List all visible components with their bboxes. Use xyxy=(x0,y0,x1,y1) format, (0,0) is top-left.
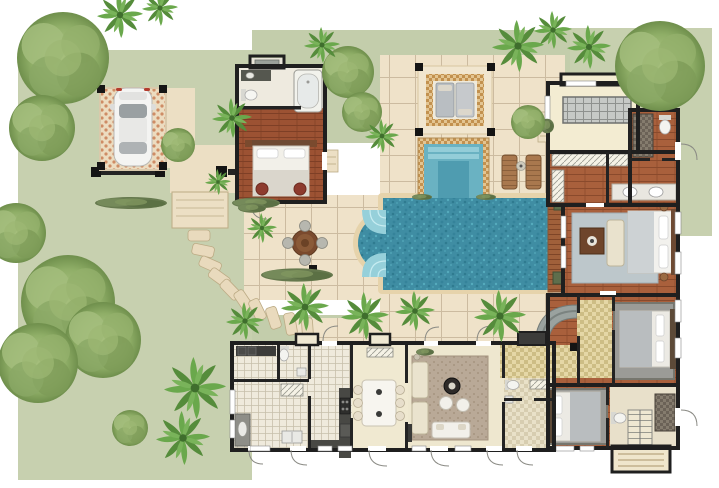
window xyxy=(556,446,574,451)
palm-tree xyxy=(97,0,143,38)
courtyard-table-center xyxy=(301,239,309,247)
window xyxy=(230,420,235,438)
car-roof xyxy=(119,118,147,142)
window xyxy=(545,96,550,122)
toilet-master-tank xyxy=(659,115,671,120)
window xyxy=(230,390,235,414)
interior-wall xyxy=(630,158,650,161)
car-windshield xyxy=(119,104,147,118)
window xyxy=(561,246,566,268)
door-gap xyxy=(322,341,337,346)
guest-sink xyxy=(246,73,254,79)
sofa-living xyxy=(412,362,428,398)
guest-bed-pillow xyxy=(257,149,278,158)
tree xyxy=(511,105,545,139)
dining-chair xyxy=(354,412,363,421)
courtyard-chair xyxy=(317,238,328,249)
floor-lamp xyxy=(414,354,420,360)
tree xyxy=(342,92,382,132)
carport-post xyxy=(159,85,167,93)
courtyard-chair xyxy=(283,238,294,249)
door-gap xyxy=(486,446,502,451)
sun-lounger xyxy=(526,155,541,189)
door-gap xyxy=(368,446,386,451)
spa-step xyxy=(428,154,479,159)
guest-armchair xyxy=(294,183,306,195)
window xyxy=(455,446,471,451)
bed2-blanket xyxy=(620,311,652,367)
spa-spillway xyxy=(438,161,469,201)
powder-toilet-bowl xyxy=(507,381,519,390)
door-gap xyxy=(424,341,438,346)
interior-wall xyxy=(577,295,580,313)
kitchen-fridge xyxy=(340,424,351,437)
door-arc xyxy=(369,450,387,466)
pantry-shelves xyxy=(281,384,303,396)
checker-corridor-vertical xyxy=(577,300,612,347)
pool-plant-tuft xyxy=(412,194,432,200)
door-gap xyxy=(675,408,681,426)
toilet-master-bowl xyxy=(660,120,671,134)
guest-bed-pillow xyxy=(284,149,305,158)
hedge xyxy=(261,268,333,281)
hedge xyxy=(238,203,266,213)
stove-burner xyxy=(346,401,349,404)
dining-chair xyxy=(396,399,405,408)
carport-post xyxy=(159,162,167,170)
courtyard-chair xyxy=(300,255,311,266)
interior-wall xyxy=(502,345,505,378)
dining-centerpiece xyxy=(376,411,382,417)
guest-side-table xyxy=(310,140,317,147)
foyer-closet xyxy=(530,380,548,389)
interior-wall xyxy=(504,398,522,401)
window xyxy=(675,338,681,358)
interior-wall xyxy=(628,110,631,154)
wc-toilet-bowl xyxy=(280,349,289,361)
sala-post xyxy=(415,63,423,71)
stove-burner xyxy=(342,401,345,404)
sala-pillow xyxy=(458,109,472,115)
garage-table xyxy=(563,97,631,123)
interior-wall xyxy=(308,396,311,448)
palm-tree xyxy=(142,0,178,26)
guest-bath-wall xyxy=(239,106,301,110)
door-arc xyxy=(487,450,503,465)
guest-toilet-bowl xyxy=(245,90,257,100)
bed-master-pillow xyxy=(659,216,668,239)
sala-post xyxy=(487,128,495,136)
carport-post xyxy=(97,162,105,170)
guest-bed-headboard xyxy=(252,140,310,146)
dining-table xyxy=(362,380,396,426)
car-mirror xyxy=(110,104,115,110)
guest-door-gap-east xyxy=(322,152,327,170)
interior-wall xyxy=(405,422,408,448)
bed2-pillow xyxy=(656,315,664,336)
interior-wall xyxy=(606,152,609,205)
wc-sink xyxy=(297,368,306,376)
door-gap xyxy=(675,142,681,160)
interior-wall xyxy=(350,345,353,398)
bed-master-blanket xyxy=(628,211,654,273)
dining-chair xyxy=(396,386,405,395)
floor-plan-shapes xyxy=(0,0,712,480)
door-gap xyxy=(430,446,448,451)
washer xyxy=(238,347,246,355)
door-arc xyxy=(681,410,697,426)
vanity-sink xyxy=(649,187,663,197)
barrel-chair xyxy=(457,399,470,412)
interior-wall xyxy=(233,379,309,382)
tree xyxy=(161,128,195,162)
bed3-blanket xyxy=(570,392,600,441)
bed2-pillow xyxy=(656,341,664,362)
sofa-master xyxy=(607,220,624,266)
pool-plant-tuft xyxy=(476,194,496,200)
guest-tub-drain xyxy=(307,81,310,84)
car-hood xyxy=(119,92,147,100)
shower3-mat xyxy=(655,394,675,431)
interior-wall xyxy=(350,418,353,448)
kitchen-stove xyxy=(340,398,350,414)
floor-plan-canvas xyxy=(0,0,719,488)
vanity-master xyxy=(612,184,676,200)
window xyxy=(561,216,566,238)
washer xyxy=(248,347,256,355)
dining-chair xyxy=(354,399,363,408)
interior-wall xyxy=(308,345,311,379)
interior-wall xyxy=(534,398,552,401)
bed-master-pillow xyxy=(659,245,668,268)
door-arc xyxy=(291,450,307,465)
chaise-pillow xyxy=(436,424,444,430)
window xyxy=(338,446,352,451)
sala-post xyxy=(415,128,423,136)
floor-plan-page xyxy=(0,0,719,488)
tree xyxy=(615,21,705,111)
coffee-table-item xyxy=(590,239,594,243)
wall-closet-bump xyxy=(370,334,390,345)
tree xyxy=(17,12,109,104)
window xyxy=(675,252,681,274)
interior-wall xyxy=(502,402,505,448)
door-gap xyxy=(290,446,306,451)
car-taillight xyxy=(116,88,122,91)
bedside-lamp xyxy=(660,273,668,281)
guest-bathtub-basin xyxy=(298,74,319,108)
interior-wall xyxy=(606,418,609,448)
interior-wall xyxy=(612,330,615,385)
door-arc xyxy=(517,450,533,465)
dining-centerpiece xyxy=(376,389,382,395)
sala-pillow xyxy=(438,85,452,91)
lounger-table-item xyxy=(520,165,523,168)
sun-lounger xyxy=(502,155,517,189)
interior-wall xyxy=(612,295,615,311)
chaise-pillow xyxy=(458,424,466,430)
door-gap xyxy=(516,446,532,451)
staff-sink xyxy=(238,422,247,437)
guest-vanity-counter xyxy=(241,70,271,81)
sofa-living xyxy=(412,402,428,434)
car-mirror xyxy=(151,104,156,110)
stepping-stone xyxy=(188,230,210,241)
door-gap xyxy=(600,291,616,295)
wall-closet-bump xyxy=(518,332,546,345)
window xyxy=(250,446,270,451)
car-taillight xyxy=(144,88,150,91)
spa-step xyxy=(428,147,479,152)
window xyxy=(566,81,596,86)
guest-side-table xyxy=(245,140,252,147)
hedge xyxy=(95,197,167,209)
interior-wall xyxy=(606,385,609,405)
interior-wall xyxy=(577,336,580,385)
window xyxy=(412,446,426,451)
guest-armchair xyxy=(256,183,268,195)
toilet3-bowl xyxy=(614,413,626,423)
door-arc xyxy=(431,450,449,466)
sala-post xyxy=(487,63,495,71)
interior-wall xyxy=(405,345,408,383)
car-rear-window xyxy=(119,142,147,154)
dining-chair xyxy=(354,386,363,395)
dining-sideboard xyxy=(367,348,393,357)
tree xyxy=(112,410,148,446)
courtyard-chair xyxy=(300,221,311,232)
door-gap xyxy=(586,203,604,207)
stove-burner xyxy=(346,408,349,411)
door-gap xyxy=(476,341,491,346)
wall-closet-bump xyxy=(296,334,318,345)
window xyxy=(675,212,681,234)
wardrobe xyxy=(552,170,564,202)
tree xyxy=(9,95,75,161)
interior-wall xyxy=(277,345,280,381)
wardrobe xyxy=(552,154,628,166)
dining-chair xyxy=(396,412,405,421)
tree xyxy=(0,323,78,403)
coffee-table-tray xyxy=(449,383,456,390)
stove-burner xyxy=(342,408,345,411)
indoor-plant xyxy=(416,348,434,355)
entry-platform xyxy=(172,192,228,228)
barrel-chair xyxy=(440,397,453,410)
window xyxy=(675,300,681,322)
corridor-post xyxy=(570,343,578,351)
window xyxy=(580,446,594,451)
window xyxy=(318,446,332,451)
